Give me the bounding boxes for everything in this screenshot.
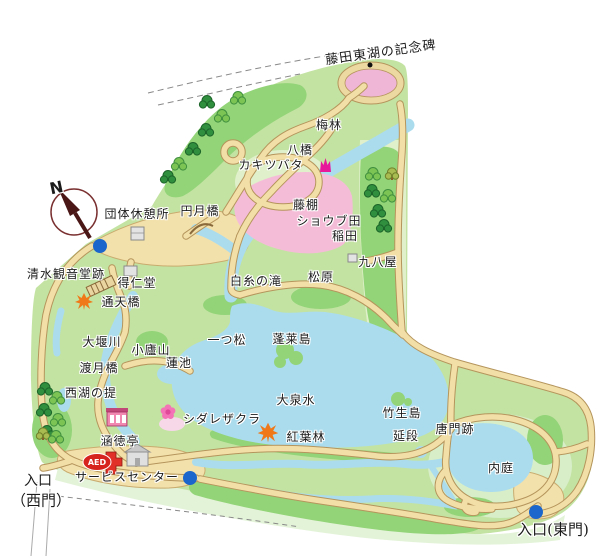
aed-badge: AED xyxy=(83,454,111,471)
park-map-graphic: AED xyxy=(0,0,600,559)
horaijima-island xyxy=(274,356,286,368)
grove-shorozan xyxy=(136,331,168,353)
boundary-line-west-2 xyxy=(46,489,50,556)
tokujindo-building-icon xyxy=(124,266,137,276)
chikubushima-island xyxy=(391,392,405,406)
teahouse-icon xyxy=(106,408,128,426)
tree-icon xyxy=(199,96,214,109)
kuhachiya-building-icon xyxy=(348,254,357,262)
north-compass-icon xyxy=(51,188,97,238)
group-rest-building-icon xyxy=(131,227,144,240)
boundary-line-west-1 xyxy=(31,482,37,556)
aed-badge-label: AED xyxy=(88,458,107,467)
sakura-patch xyxy=(159,417,185,431)
horaijima-island xyxy=(289,351,303,365)
chikubushima-island xyxy=(404,398,412,406)
park-map: AED 藤田東湖の記念碑梅林八橋カキツバタ団体休憩所円月橋藤棚シ xyxy=(0,0,600,559)
